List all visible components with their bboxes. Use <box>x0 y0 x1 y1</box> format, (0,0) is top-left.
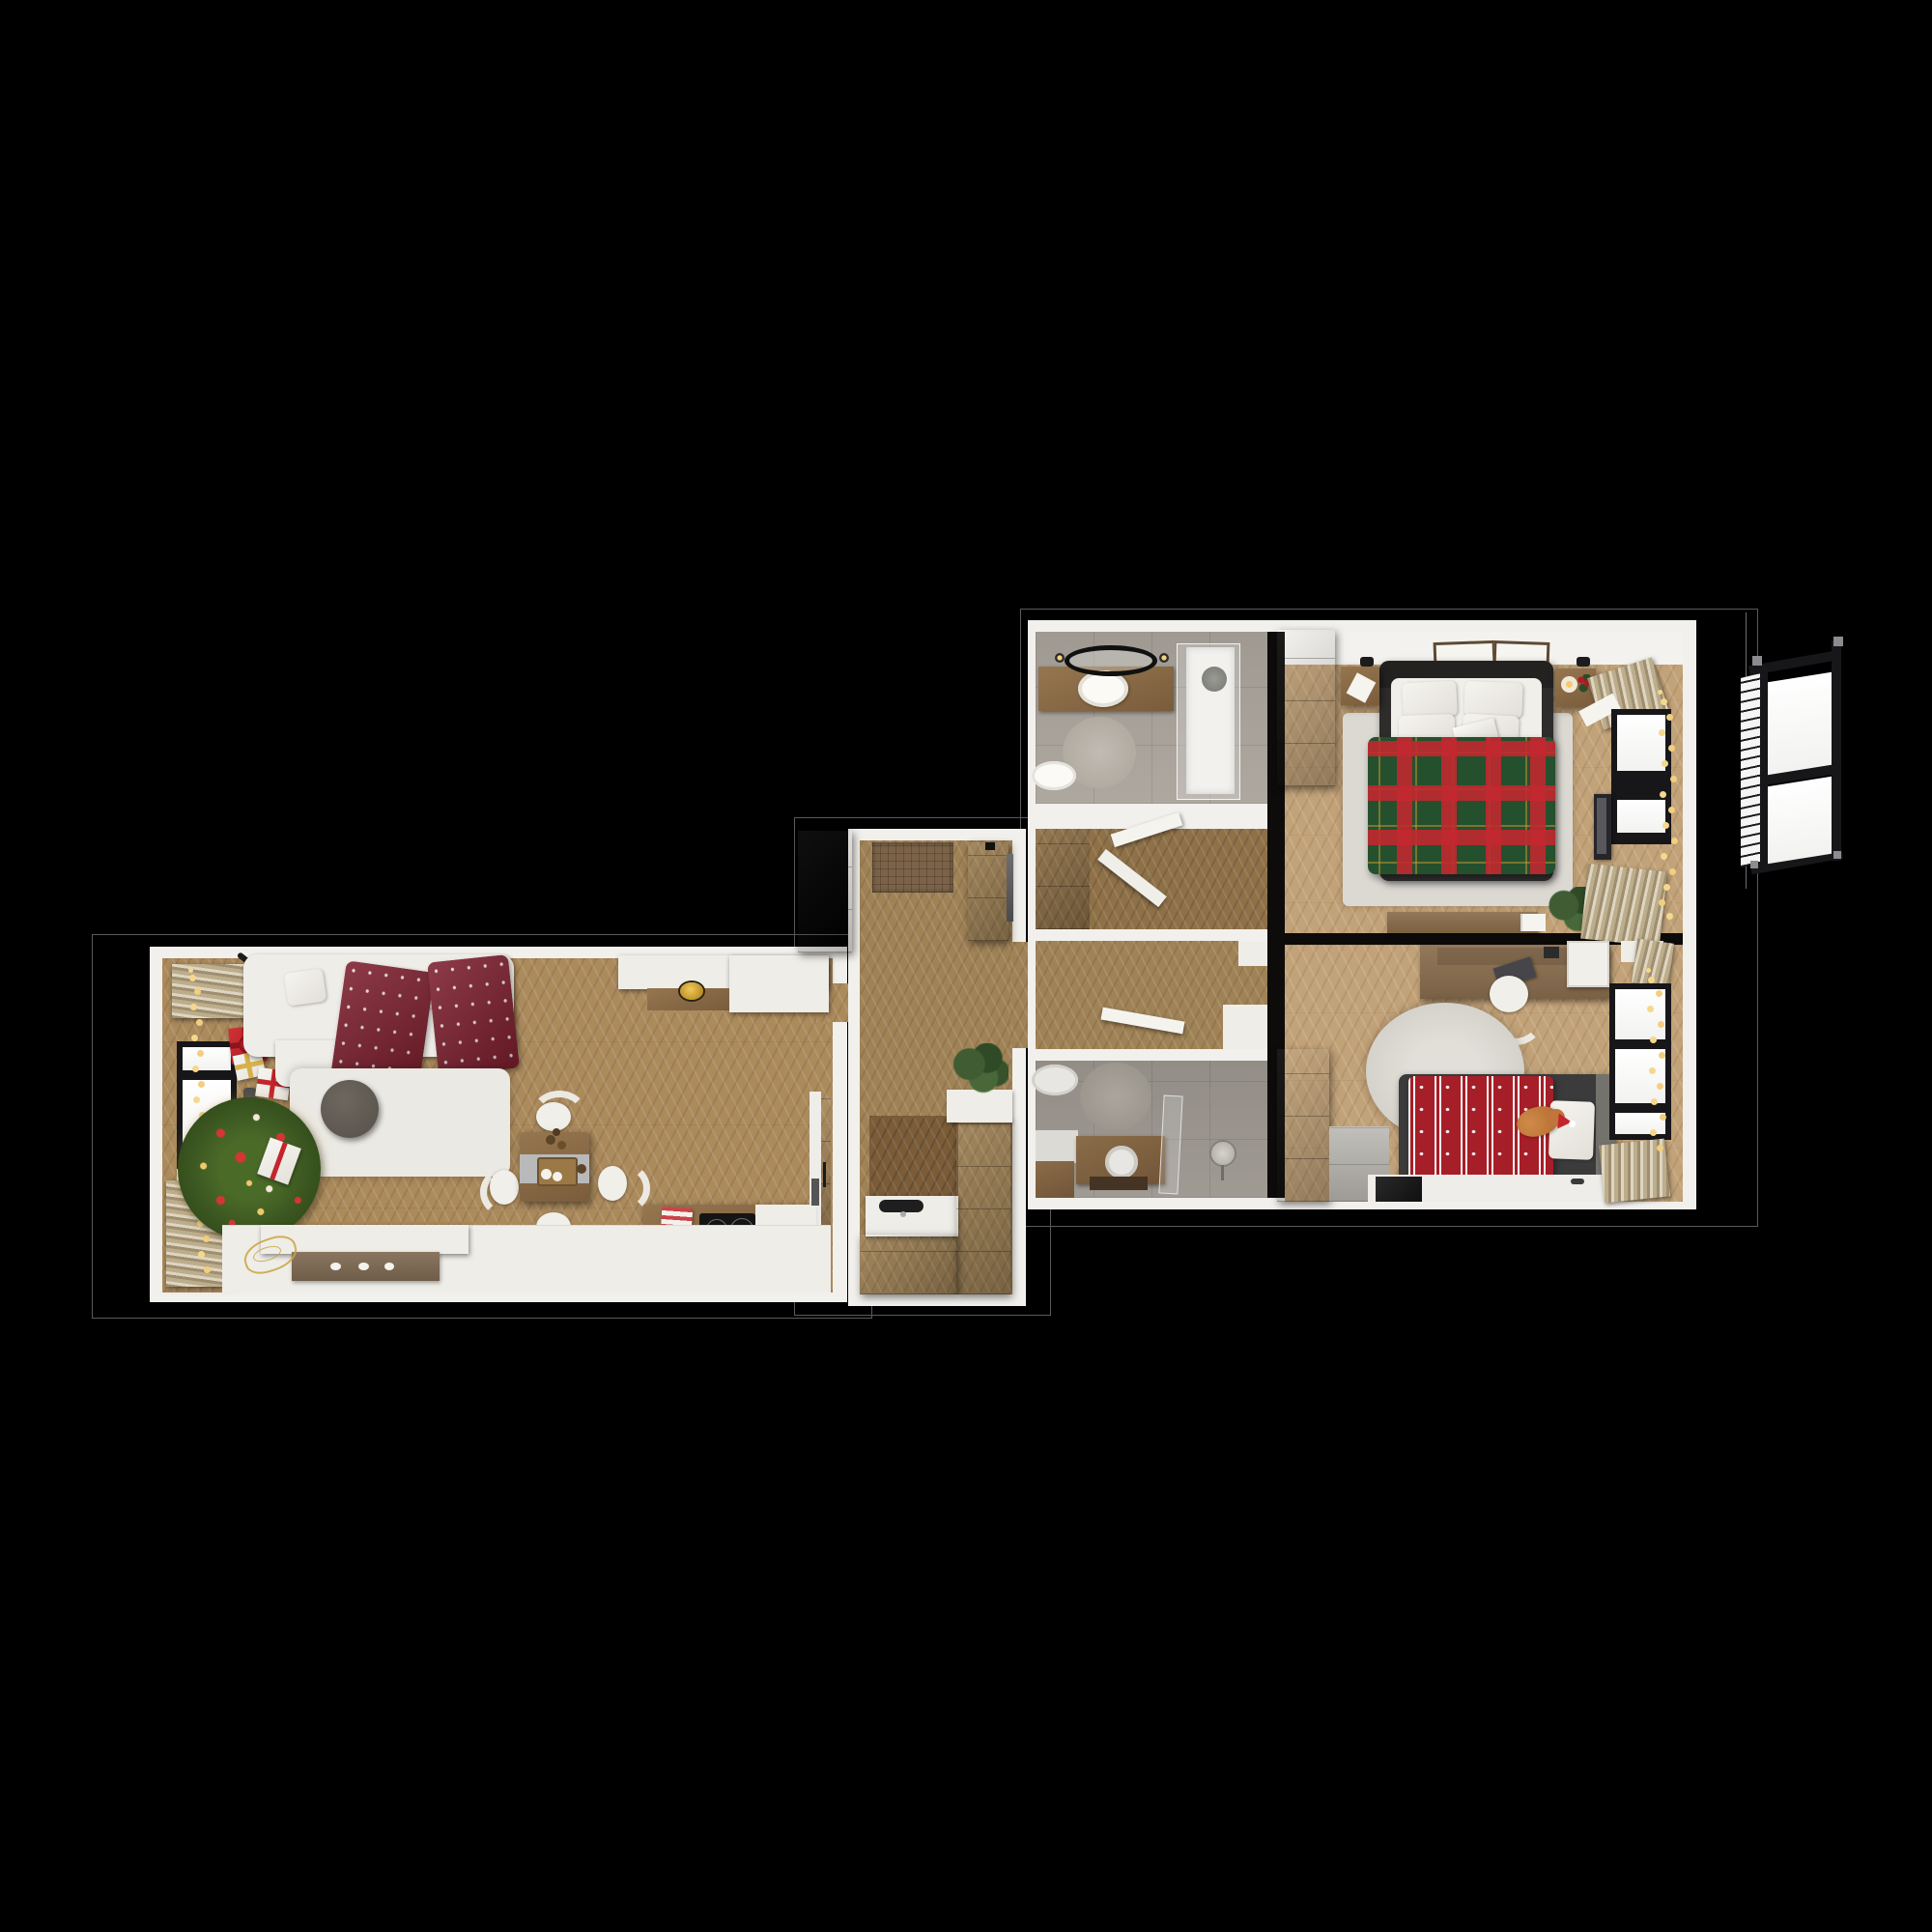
kitchenette-floor <box>869 1116 958 1203</box>
dining-chair-top <box>526 1091 581 1133</box>
window-corner-cap-1 <box>1752 656 1762 666</box>
window-corner-cap-2 <box>1833 637 1843 646</box>
standing-mirror-icon <box>1211 1142 1235 1165</box>
kitchenette-cabinet-bottom <box>860 1235 956 1294</box>
bedroom-wardrobe <box>1277 630 1335 786</box>
toilet-1 <box>1032 761 1076 790</box>
string-lights-kids-icon <box>1646 968 1651 973</box>
pinecone-2 <box>557 1141 566 1150</box>
round-mirror-icon <box>1065 645 1157 676</box>
window-corner-cap-4 <box>1750 861 1758 868</box>
exterior-window-rail-right <box>1832 640 1841 861</box>
kids-window <box>1609 983 1671 1140</box>
kitchenette-sink <box>879 1200 923 1212</box>
kitchenette-cabinet-tall <box>956 1119 1010 1294</box>
closet-hall <box>1036 829 1267 929</box>
living-window-pane-top <box>183 1047 231 1070</box>
kitchenette-faucet <box>900 1211 906 1217</box>
curtain-bottom-bedroom <box>1580 864 1667 947</box>
console-knob-2 <box>358 1263 369 1270</box>
kids-curtain-top <box>1632 939 1674 988</box>
bed-pillow-2 <box>1463 681 1522 718</box>
entry-wardrobe <box>798 831 852 952</box>
string-lights-living-icon <box>188 968 193 973</box>
santa-hat-pom <box>1569 1121 1576 1127</box>
bedroom-wing <box>1020 609 1756 1225</box>
bath2-mat <box>1090 1177 1148 1190</box>
rug-bath-2 <box>1080 1063 1151 1130</box>
pinecone-1 <box>546 1135 555 1145</box>
media-bench <box>1387 912 1538 933</box>
corridor-step-2 <box>1223 1005 1267 1049</box>
sofa-pillow-1 <box>284 968 327 1006</box>
dresser-tray <box>985 842 995 850</box>
corridor <box>1036 941 1267 1049</box>
living-room <box>92 934 870 1317</box>
corridor-step-1 <box>1238 941 1267 966</box>
exterior-pane-bottom <box>1768 777 1832 864</box>
console-knob-3 <box>384 1263 394 1270</box>
bathroom-2 <box>1036 1061 1267 1198</box>
hall-plant-icon <box>952 1043 1009 1095</box>
plate-2 <box>553 1172 562 1181</box>
burgundy-throw-2 <box>427 954 520 1076</box>
window-corner-cap-3 <box>1833 851 1841 859</box>
exterior-window <box>1739 633 1855 884</box>
plate-1 <box>541 1169 552 1179</box>
open-door-3 <box>1101 1008 1185 1035</box>
shower-drain <box>1202 667 1227 692</box>
bed-pillow-1 <box>1402 681 1458 719</box>
wall-mirror <box>1007 854 1013 922</box>
wall-tv <box>1594 794 1611 860</box>
kids-wardrobe <box>1277 1049 1329 1202</box>
apartment-floor-plan <box>0 0 1932 1932</box>
bathroom-1 <box>1036 632 1267 804</box>
entry-hall <box>794 817 1049 1314</box>
open-door-2 <box>1097 849 1167 907</box>
bedroom-kids <box>1285 945 1683 1202</box>
dining-chair-right <box>590 1154 633 1208</box>
exterior-pane-top <box>1768 672 1832 775</box>
sconce-left-bed-icon <box>1360 657 1374 667</box>
string-lights-bedroom-icon <box>1658 690 1662 695</box>
toilet-2 <box>1032 1065 1078 1095</box>
desk-phone <box>1544 947 1559 958</box>
sink-2 <box>1105 1146 1138 1179</box>
golden-bowl <box>680 982 703 1000</box>
bedroom-window <box>1611 709 1671 844</box>
sconce-right-icon <box>1159 653 1169 663</box>
candle-icon <box>1561 676 1577 693</box>
mirror-stand <box>1221 1165 1224 1180</box>
pinecone-4 <box>577 1164 586 1174</box>
exterior-window-bar-top <box>1748 650 1841 676</box>
closet-wardrobe <box>1036 829 1090 929</box>
white-rug <box>290 1068 510 1177</box>
tartan-duvet <box>1368 737 1555 874</box>
doormat <box>872 842 953 893</box>
books-on-bench <box>1522 914 1546 931</box>
dining-chair-left <box>482 1158 525 1212</box>
shower-screen-2 <box>1158 1095 1182 1195</box>
bath2-bench <box>1036 1130 1078 1163</box>
pinecone-3 <box>553 1128 560 1136</box>
bath2-cabinet <box>1036 1161 1074 1198</box>
christmas-tree <box>178 1097 321 1240</box>
floor-handle <box>1571 1179 1584 1184</box>
sconce-left-icon <box>1055 653 1065 663</box>
coffee-table <box>321 1080 379 1138</box>
console-knob-1 <box>330 1263 341 1270</box>
bedroom-main <box>1285 632 1683 933</box>
glossy-panel <box>1376 1177 1422 1202</box>
desk-white-shelves <box>1567 941 1609 987</box>
kids-curtain-bottom <box>1599 1139 1670 1204</box>
entry-dresser <box>968 842 1009 941</box>
sconce-right-bed-icon <box>1577 657 1590 667</box>
tv-console-front <box>292 1252 440 1281</box>
exterior-window-rail-left <box>1760 666 1768 870</box>
